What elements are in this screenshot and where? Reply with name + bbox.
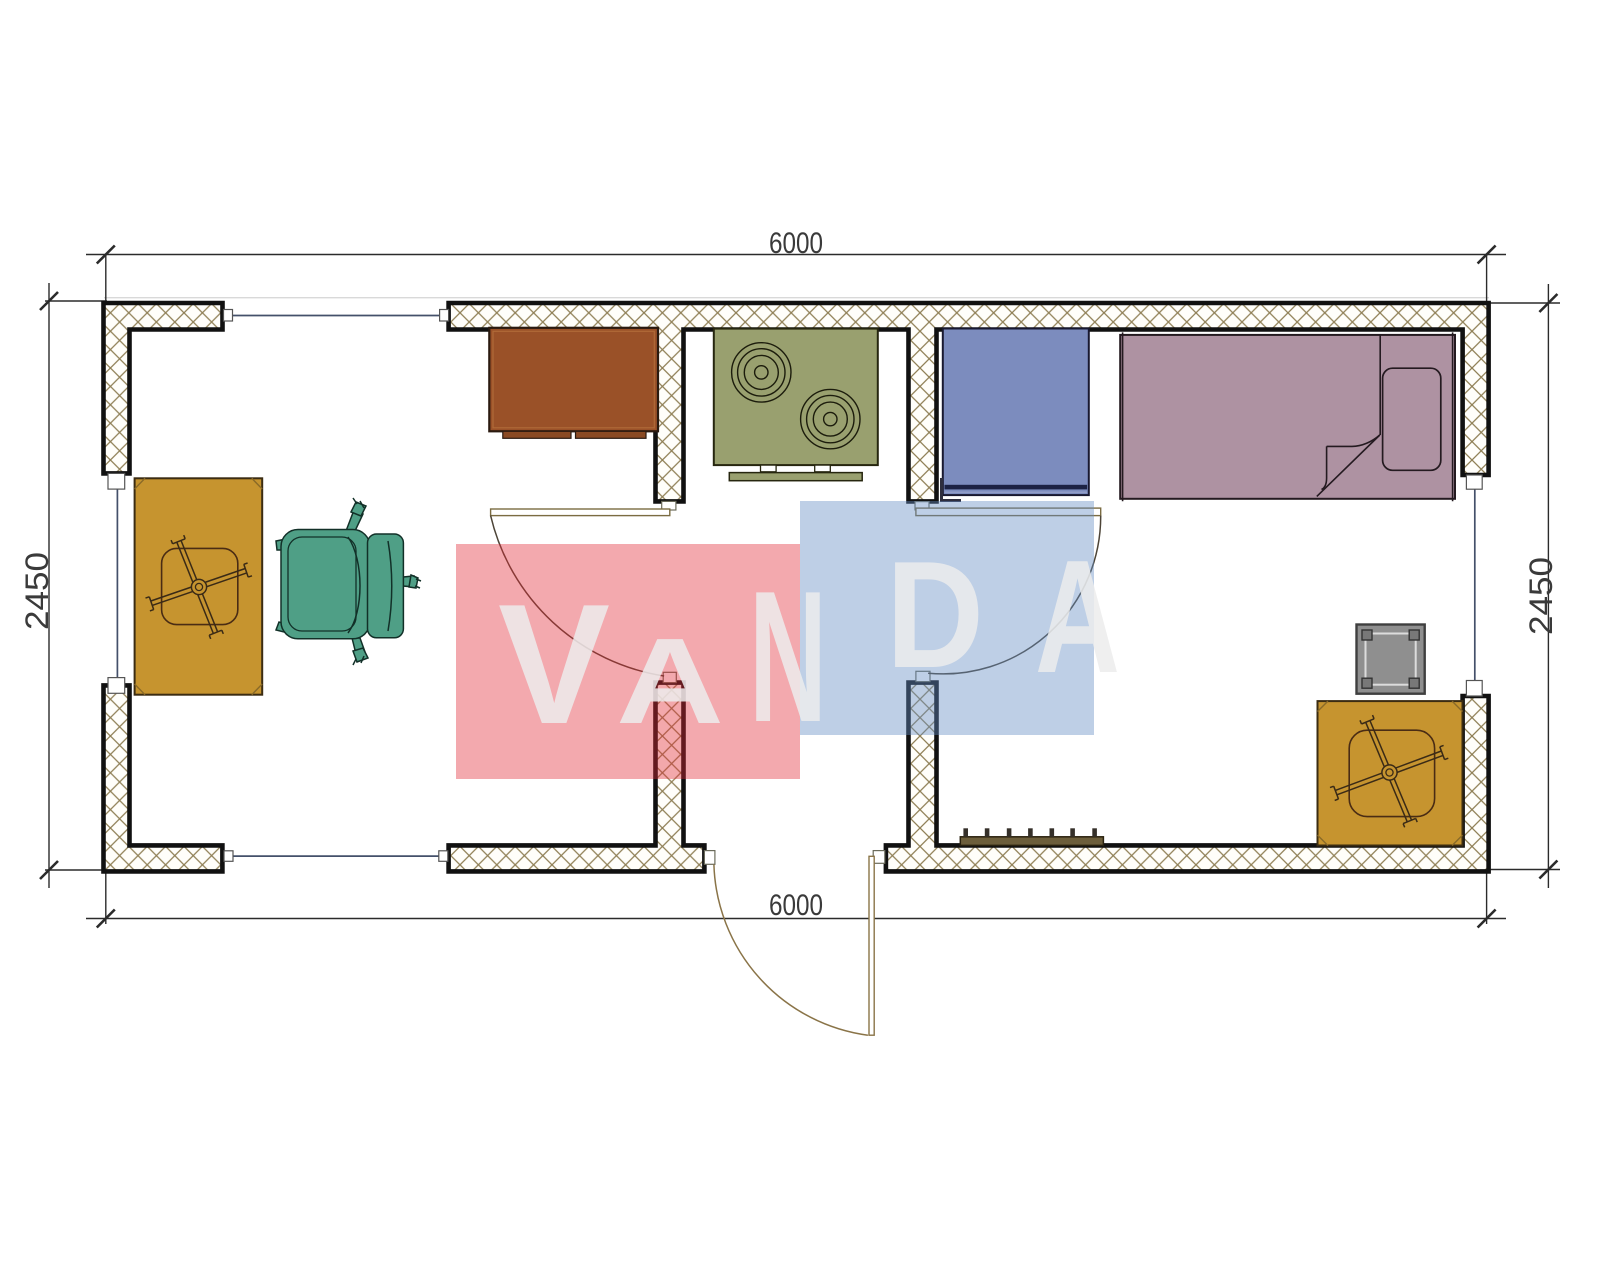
svg-text:N: N bbox=[749, 552, 827, 761]
svg-text:6000: 6000 bbox=[769, 227, 823, 260]
svg-text:V: V bbox=[498, 569, 610, 760]
svg-text:6000: 6000 bbox=[769, 889, 823, 922]
svg-text:2450: 2450 bbox=[19, 552, 55, 630]
svg-text:A: A bbox=[616, 613, 724, 749]
svg-text:A: A bbox=[1035, 527, 1120, 707]
svg-text:D: D bbox=[886, 530, 984, 700]
svg-text:2450: 2450 bbox=[1523, 557, 1559, 635]
